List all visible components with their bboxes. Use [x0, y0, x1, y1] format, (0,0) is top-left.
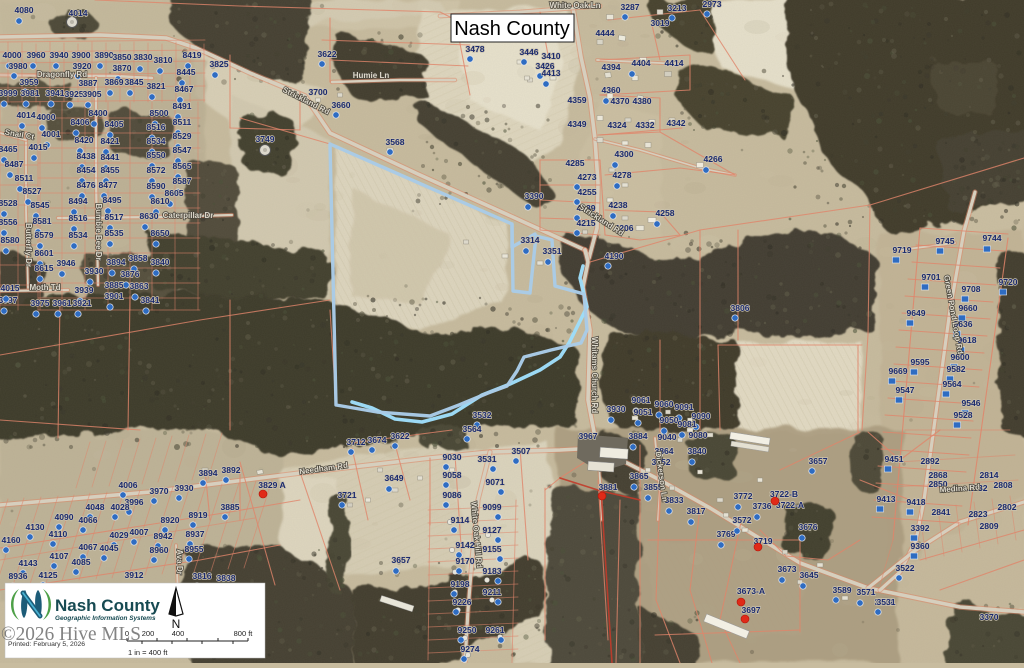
svg-text:4000: 4000 [36, 112, 55, 122]
svg-text:3894: 3894 [106, 257, 125, 267]
svg-text:4258: 4258 [655, 208, 674, 218]
svg-text:3890: 3890 [94, 50, 113, 60]
svg-text:3522: 3522 [895, 563, 914, 573]
svg-text:3772: 3772 [733, 491, 752, 501]
svg-text:3876: 3876 [120, 269, 139, 279]
svg-text:3446: 3446 [519, 47, 538, 57]
svg-text:3673: 3673 [777, 564, 796, 574]
svg-text:9058: 9058 [442, 470, 461, 480]
svg-text:9099: 9099 [482, 502, 501, 512]
svg-text:8535: 8535 [104, 228, 123, 238]
svg-text:3676: 3676 [798, 522, 817, 532]
svg-text:3816: 3816 [192, 571, 211, 581]
svg-text:8476: 8476 [76, 180, 95, 190]
svg-text:3840: 3840 [150, 257, 169, 267]
svg-text:3287: 3287 [620, 2, 639, 12]
svg-text:4143: 4143 [18, 558, 37, 568]
svg-text:9745: 9745 [935, 236, 954, 246]
svg-text:9547: 9547 [895, 385, 914, 395]
svg-text:3410: 3410 [541, 51, 560, 61]
svg-text:8495: 8495 [102, 195, 121, 205]
svg-text:8580: 8580 [0, 235, 19, 245]
svg-text:8438: 8438 [76, 151, 95, 161]
svg-text:4273: 4273 [577, 172, 596, 182]
svg-text:9226: 9226 [452, 597, 471, 607]
svg-text:8516: 8516 [68, 213, 87, 223]
svg-text:8445: 8445 [176, 67, 195, 77]
svg-text:4360: 4360 [601, 85, 620, 95]
svg-text:4404: 4404 [631, 58, 650, 68]
svg-text:3850: 3850 [112, 52, 131, 62]
svg-text:3912: 3912 [124, 570, 143, 580]
svg-text:8419: 8419 [182, 50, 201, 60]
svg-text:8919: 8919 [188, 510, 207, 520]
svg-text:Caterpillar Dr: Caterpillar Dr [163, 211, 214, 220]
svg-text:8511: 8511 [15, 173, 34, 183]
svg-text:3858: 3858 [128, 253, 147, 263]
svg-text:8615: 8615 [34, 263, 53, 273]
svg-text:2841: 2841 [931, 507, 950, 517]
svg-text:3829 A: 3829 A [258, 480, 285, 490]
svg-text:9451: 9451 [884, 454, 903, 464]
svg-text:8581: 8581 [32, 216, 51, 226]
svg-text:3925: 3925 [64, 89, 83, 99]
svg-text:8601: 8601 [34, 248, 53, 258]
svg-text:9701: 9701 [921, 272, 940, 282]
svg-text:4014: 4014 [68, 8, 87, 18]
svg-text:3622: 3622 [317, 49, 336, 59]
svg-text:3930: 3930 [84, 266, 103, 276]
svg-text:9086: 9086 [442, 490, 461, 500]
svg-text:8955: 8955 [184, 544, 203, 554]
svg-text:9155: 9155 [482, 544, 501, 554]
svg-text:2809: 2809 [979, 521, 998, 531]
svg-text:3865: 3865 [629, 471, 648, 481]
svg-text:9660: 9660 [958, 303, 977, 313]
svg-text:8517: 8517 [104, 212, 123, 222]
svg-text:3901: 3901 [104, 291, 123, 301]
svg-text:3825: 3825 [209, 59, 228, 69]
svg-text:9198: 9198 [450, 579, 469, 589]
svg-text:3980: 3980 [8, 61, 27, 71]
svg-text:9170: 9170 [455, 556, 474, 566]
svg-text:3845: 3845 [124, 77, 143, 87]
svg-text:9211: 9211 [483, 587, 502, 597]
svg-text:4029: 4029 [109, 530, 128, 540]
svg-text:4394: 4394 [601, 62, 620, 72]
svg-text:1 in = 400 ft: 1 in = 400 ft [128, 648, 168, 657]
svg-text:200: 200 [142, 629, 155, 638]
svg-text:800 ft: 800 ft [234, 629, 254, 638]
svg-text:8420: 8420 [74, 135, 93, 145]
svg-text:8527: 8527 [22, 186, 41, 196]
svg-text:9720: 9720 [998, 277, 1017, 287]
svg-text:8590: 8590 [146, 181, 165, 191]
svg-text:4130: 4130 [25, 522, 44, 532]
svg-text:8650: 8650 [150, 228, 169, 238]
svg-text:4160: 4160 [1, 535, 20, 545]
svg-text:9546: 9546 [961, 398, 980, 408]
svg-text:3564: 3564 [462, 424, 481, 434]
svg-text:3930: 3930 [174, 483, 193, 493]
svg-text:3940: 3940 [49, 50, 68, 60]
svg-text:3572: 3572 [732, 515, 751, 525]
svg-text:9564: 9564 [942, 379, 961, 389]
svg-text:3674: 3674 [367, 435, 386, 445]
svg-text:8550: 8550 [146, 150, 165, 160]
svg-text:8572: 8572 [146, 165, 165, 175]
svg-text:4255: 4255 [577, 187, 596, 197]
svg-text:8556: 8556 [0, 217, 18, 227]
svg-text:3657: 3657 [808, 456, 827, 466]
svg-text:8405: 8405 [104, 119, 123, 129]
svg-text:2802: 2802 [997, 502, 1016, 512]
svg-text:9080: 9080 [688, 430, 707, 440]
svg-text:4045: 4045 [99, 543, 118, 553]
svg-text:9081: 9081 [677, 419, 696, 429]
svg-text:3841: 3841 [140, 295, 159, 305]
svg-text:9719: 9719 [892, 245, 911, 255]
svg-text:8421: 8421 [100, 136, 119, 146]
svg-text:3838: 3838 [216, 573, 235, 583]
svg-text:3722-A: 3722-A [776, 500, 804, 510]
svg-text:8491: 8491 [172, 101, 191, 111]
svg-text:4085: 4085 [71, 557, 90, 567]
svg-text:3941: 3941 [45, 88, 64, 98]
svg-text:9261: 9261 [485, 625, 504, 635]
svg-text:4370: 4370 [610, 96, 629, 106]
svg-text:4380: 4380 [632, 96, 651, 106]
svg-text:8528: 8528 [0, 198, 18, 208]
svg-text:4028: 4028 [110, 502, 129, 512]
svg-text:©2026 Hive MLS: ©2026 Hive MLS [1, 623, 141, 645]
svg-text:4413: 4413 [541, 68, 560, 78]
svg-text:4125: 4125 [38, 570, 57, 580]
svg-text:3999: 3999 [0, 88, 18, 98]
svg-text:4238: 4238 [608, 200, 627, 210]
svg-text:9595: 9595 [910, 357, 929, 367]
svg-text:Bumble Bee Dr: Bumble Bee Dr [94, 203, 103, 260]
svg-text:8487: 8487 [4, 159, 23, 169]
svg-text:9040: 9040 [657, 432, 676, 442]
svg-text:3589: 3589 [832, 585, 851, 595]
svg-text:3749: 3749 [255, 134, 274, 144]
svg-text:8441: 8441 [100, 152, 119, 162]
svg-text:8494: 8494 [68, 196, 87, 206]
svg-text:3830: 3830 [133, 52, 152, 62]
svg-text:3894: 3894 [198, 468, 217, 478]
svg-text:3900: 3900 [71, 50, 90, 60]
svg-text:4278: 4278 [612, 170, 631, 180]
svg-text:8610: 8610 [150, 196, 169, 206]
svg-text:8942: 8942 [153, 531, 172, 541]
svg-text:8545: 8545 [30, 200, 49, 210]
svg-text:3967: 3967 [578, 431, 597, 441]
svg-text:9744: 9744 [982, 233, 1001, 243]
svg-text:3657: 3657 [391, 555, 410, 565]
svg-text:4266: 4266 [703, 154, 722, 164]
svg-text:9360: 9360 [910, 541, 929, 551]
svg-text:3507: 3507 [511, 446, 530, 456]
svg-text:4007: 4007 [129, 527, 148, 537]
svg-text:4066: 4066 [78, 515, 97, 525]
svg-text:4067: 4067 [78, 542, 97, 552]
svg-text:9708: 9708 [961, 284, 980, 294]
svg-text:3532: 3532 [472, 410, 491, 420]
svg-text:3370: 3370 [979, 612, 998, 622]
svg-text:3769: 3769 [716, 529, 735, 539]
svg-text:9582: 9582 [946, 364, 965, 374]
svg-text:8960: 8960 [149, 545, 168, 555]
svg-text:9142: 9142 [455, 540, 474, 550]
svg-text:8455: 8455 [100, 165, 119, 175]
svg-text:4110: 4110 [49, 529, 68, 539]
svg-text:8516: 8516 [146, 122, 165, 132]
svg-text:3700: 3700 [308, 87, 327, 97]
svg-text:3869: 3869 [104, 77, 123, 87]
svg-text:8465: 8465 [0, 144, 18, 154]
svg-text:4006: 4006 [118, 480, 137, 490]
svg-text:3930: 3930 [606, 404, 625, 414]
svg-text:9061: 9061 [631, 395, 650, 405]
svg-text:8936: 8936 [8, 571, 27, 581]
svg-text:2892: 2892 [920, 456, 939, 466]
svg-text:9050: 9050 [659, 415, 678, 425]
svg-text:8454: 8454 [76, 165, 95, 175]
svg-text:3840: 3840 [687, 446, 706, 456]
svg-text:4349: 4349 [567, 119, 586, 129]
svg-text:4015: 4015 [28, 142, 47, 152]
svg-text:3939: 3939 [74, 285, 93, 295]
svg-text:4090: 4090 [54, 512, 73, 522]
svg-text:4324: 4324 [607, 120, 626, 130]
svg-text:4342: 4342 [666, 118, 685, 128]
svg-text:9060: 9060 [654, 399, 673, 409]
svg-text:9649: 9649 [906, 308, 925, 318]
svg-text:2808: 2808 [993, 480, 1012, 490]
svg-text:Moth Td: Moth Td [29, 283, 60, 292]
svg-text:Butterfly Dr: Butterfly Dr [24, 223, 33, 267]
svg-text:2814: 2814 [979, 470, 998, 480]
svg-text:Ava Dr: Ava Dr [175, 549, 184, 575]
svg-text:3884: 3884 [628, 431, 647, 441]
svg-text:4190: 4190 [604, 251, 623, 261]
svg-text:3863: 3863 [129, 281, 148, 291]
svg-text:3213: 3213 [667, 3, 686, 13]
svg-text:4444: 4444 [595, 28, 614, 38]
svg-text:3885: 3885 [104, 280, 123, 290]
svg-text:3736: 3736 [752, 501, 771, 511]
svg-text:4015: 4015 [0, 283, 19, 293]
svg-text:2823: 2823 [968, 509, 987, 519]
svg-text:3892: 3892 [221, 465, 240, 475]
svg-text:3712: 3712 [346, 437, 365, 447]
svg-text:8477: 8477 [98, 180, 117, 190]
svg-text:3571: 3571 [856, 587, 875, 597]
svg-text:8937: 8937 [185, 529, 204, 539]
svg-text:9413: 9413 [876, 494, 895, 504]
svg-text:8534: 8534 [68, 230, 87, 240]
svg-text:2973: 2973 [702, 0, 721, 9]
svg-text:3478: 3478 [465, 44, 484, 54]
svg-text:3531: 3531 [876, 597, 895, 607]
svg-text:4332: 4332 [635, 120, 654, 130]
svg-text:Whitams Church Rd: Whitams Church Rd [590, 337, 599, 414]
svg-text:9669: 9669 [888, 366, 907, 376]
svg-text:8579: 8579 [34, 230, 53, 240]
svg-text:Nash County: Nash County [55, 596, 160, 615]
svg-text:8920: 8920 [160, 515, 179, 525]
svg-text:4014: 4014 [16, 110, 35, 120]
svg-text:3981: 3981 [20, 88, 39, 98]
svg-text:4000: 4000 [2, 50, 21, 60]
svg-text:8529: 8529 [172, 131, 191, 141]
svg-text:3817: 3817 [686, 506, 705, 516]
svg-text:3887: 3887 [78, 78, 97, 88]
svg-text:3885: 3885 [220, 502, 239, 512]
svg-text:3806: 3806 [730, 303, 749, 313]
svg-text:Dragonfly Rd: Dragonfly Rd [37, 70, 87, 79]
svg-text:3697: 3697 [741, 605, 760, 615]
svg-text:4300: 4300 [614, 149, 633, 159]
svg-text:3721: 3721 [337, 490, 356, 500]
svg-text:3673-A: 3673-A [737, 586, 765, 596]
svg-text:4080: 4080 [14, 5, 33, 15]
svg-text:3810: 3810 [153, 55, 172, 65]
svg-text:9528: 9528 [953, 410, 972, 420]
svg-text:4001: 4001 [41, 129, 60, 139]
svg-text:White Oak Ln: White Oak Ln [549, 1, 600, 10]
svg-text:3921: 3921 [72, 298, 91, 308]
svg-text:9183: 9183 [482, 566, 501, 576]
svg-text:3531: 3531 [477, 454, 496, 464]
svg-text:3881: 3881 [598, 482, 617, 492]
svg-text:3870: 3870 [112, 63, 131, 73]
svg-text:9114: 9114 [451, 515, 470, 525]
svg-text:8406: 8406 [70, 117, 89, 127]
svg-text:3645: 3645 [799, 570, 818, 580]
svg-text:8467: 8467 [174, 84, 193, 94]
svg-text:9030: 9030 [442, 452, 461, 462]
svg-text:3392: 3392 [910, 523, 929, 533]
svg-text:3660: 3660 [331, 100, 350, 110]
svg-text:400: 400 [172, 629, 185, 638]
svg-text:9250: 9250 [457, 625, 476, 635]
svg-text:8630: 8630 [139, 211, 158, 221]
svg-text:3959: 3959 [19, 77, 38, 87]
svg-text:9418: 9418 [906, 497, 925, 507]
svg-text:3019: 3019 [650, 18, 669, 28]
svg-text:3905: 3905 [82, 89, 101, 99]
svg-text:Geographic Information Systems: Geographic Information Systems [55, 615, 156, 622]
svg-text:3390: 3390 [524, 191, 543, 201]
svg-text:3960: 3960 [26, 50, 45, 60]
svg-text:3622: 3622 [390, 431, 409, 441]
svg-text:8400: 8400 [88, 108, 107, 118]
svg-text:3649: 3649 [384, 473, 403, 483]
svg-text:4359: 4359 [567, 95, 586, 105]
svg-text:9274: 9274 [460, 644, 479, 654]
svg-text:Humie Ln: Humie Ln [353, 71, 390, 80]
svg-text:8500: 8500 [149, 108, 168, 118]
svg-text:4048: 4048 [85, 502, 104, 512]
svg-text:8534: 8534 [146, 136, 165, 146]
svg-text:3946: 3946 [56, 258, 75, 268]
svg-text:9071: 9071 [485, 477, 504, 487]
svg-text:3351: 3351 [542, 246, 561, 256]
svg-text:3961: 3961 [52, 298, 71, 308]
svg-text:4285: 4285 [565, 158, 584, 168]
svg-text:8565: 8565 [172, 161, 191, 171]
svg-text:9127: 9127 [482, 525, 501, 535]
svg-text:Nash County: Nash County [454, 18, 570, 40]
svg-text:8587: 8587 [172, 176, 191, 186]
svg-text:3975: 3975 [30, 298, 49, 308]
svg-text:3568: 3568 [385, 137, 404, 147]
svg-text:3821: 3821 [146, 81, 165, 91]
svg-text:3970: 3970 [149, 486, 168, 496]
svg-text:8547: 8547 [172, 145, 191, 155]
svg-text:8511: 8511 [173, 117, 192, 127]
svg-text:3314: 3314 [520, 235, 539, 245]
svg-text:4107: 4107 [49, 551, 68, 561]
svg-text:9051: 9051 [633, 407, 652, 417]
svg-text:4414: 4414 [664, 58, 683, 68]
